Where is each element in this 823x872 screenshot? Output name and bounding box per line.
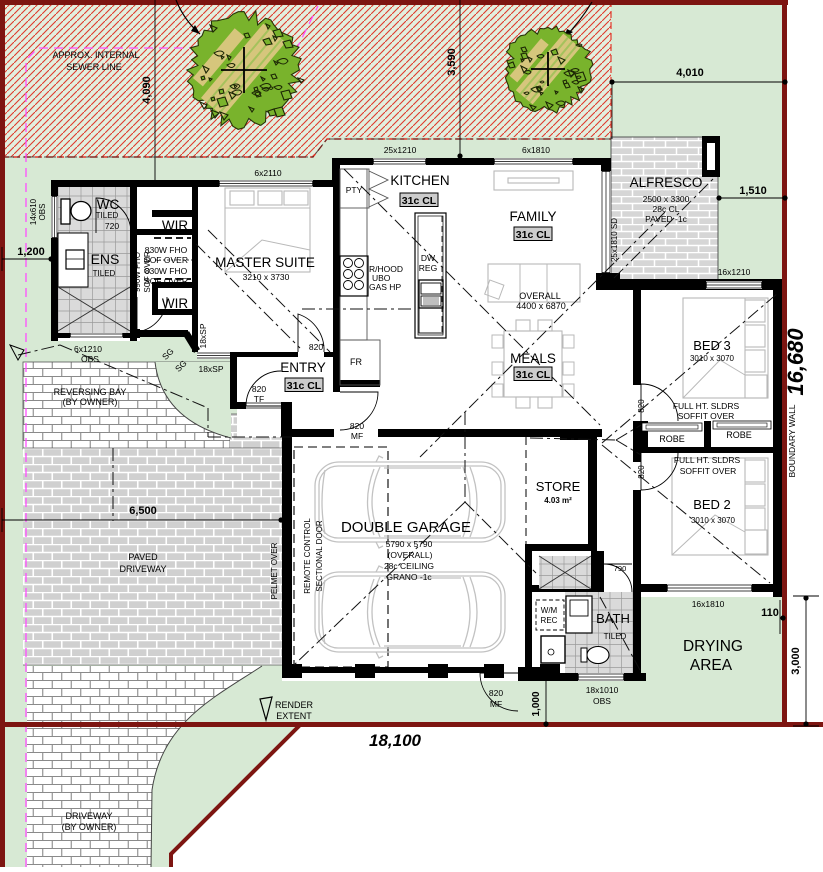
- svg-text:DOUBLE GARAGE: DOUBLE GARAGE: [341, 519, 471, 536]
- svg-text:(BY OWNER): (BY OWNER): [62, 822, 117, 832]
- svg-text:820: 820: [309, 342, 323, 352]
- svg-text:830W FHO: 830W FHO: [145, 266, 188, 276]
- svg-text:SECTIONAL DOOR: SECTIONAL DOOR: [315, 520, 324, 591]
- svg-text:APPROX. INTERNAL: APPROX. INTERNAL: [52, 50, 139, 60]
- svg-text:SOF OVER: SOF OVER: [144, 276, 188, 286]
- svg-text:FR: FR: [350, 357, 362, 367]
- svg-text:16x1810: 16x1810: [692, 599, 725, 609]
- svg-text:PAVED -1c: PAVED -1c: [645, 214, 687, 224]
- svg-text:KITCHEN: KITCHEN: [390, 173, 449, 188]
- svg-text:4,090: 4,090: [141, 76, 153, 104]
- svg-text:REVERSING BAY: REVERSING BAY: [54, 387, 127, 397]
- svg-text:3,000: 3,000: [790, 647, 802, 675]
- svg-text:1,510: 1,510: [739, 185, 767, 197]
- svg-text:4400 x 6870: 4400 x 6870: [516, 301, 566, 311]
- svg-text:3010 x 3070: 3010 x 3070: [691, 516, 736, 525]
- svg-text:OBS: OBS: [593, 696, 611, 706]
- svg-text:SEWER LINE: SEWER LINE: [66, 62, 122, 72]
- svg-text:3010 x 3070: 3010 x 3070: [690, 354, 735, 363]
- svg-text:BOUNDARY WALL: BOUNDARY WALL: [787, 404, 797, 477]
- svg-text:OBS: OBS: [38, 204, 47, 221]
- svg-text:PAVED: PAVED: [128, 552, 158, 562]
- svg-text:SOFFIT OVER: SOFFIT OVER: [680, 466, 737, 476]
- svg-text:18,100: 18,100: [369, 731, 422, 750]
- svg-text:SOFFIT OVER: SOFFIT OVER: [678, 411, 735, 421]
- svg-text:WIR: WIR: [162, 296, 188, 311]
- svg-text:ROBE: ROBE: [659, 434, 685, 444]
- svg-text:31c CL: 31c CL: [402, 195, 437, 207]
- svg-text:ALFRESCO: ALFRESCO: [630, 175, 703, 190]
- svg-text:ENS: ENS: [91, 251, 120, 267]
- svg-text:18xSP: 18xSP: [198, 323, 208, 348]
- svg-text:28c CL: 28c CL: [653, 204, 680, 214]
- svg-text:110: 110: [761, 607, 779, 619]
- svg-text:PELMET OVER: PELMET OVER: [270, 542, 279, 599]
- svg-text:31c CL: 31c CL: [287, 380, 322, 392]
- svg-text:31c CL: 31c CL: [516, 229, 551, 241]
- svg-text:ROBE: ROBE: [726, 430, 752, 440]
- svg-text:990W FHO: 990W FHO: [133, 252, 142, 292]
- svg-text:AREA: AREA: [690, 657, 733, 674]
- svg-text:REG: REG: [419, 263, 437, 273]
- svg-text:TILED: TILED: [96, 211, 119, 220]
- svg-text:4.03 m²: 4.03 m²: [544, 496, 572, 505]
- svg-text:TILED: TILED: [604, 632, 627, 641]
- svg-text:18xSP: 18xSP: [198, 364, 223, 374]
- svg-text:BATH: BATH: [596, 611, 630, 626]
- svg-text:OVERALL: OVERALL: [519, 291, 561, 301]
- svg-text:1,000: 1,000: [531, 691, 542, 716]
- svg-text:720: 720: [105, 221, 119, 231]
- svg-text:MF: MF: [490, 699, 502, 709]
- svg-text:RENDER: RENDER: [275, 700, 314, 710]
- svg-text:820: 820: [489, 688, 503, 698]
- svg-text:(BY OWNER): (BY OWNER): [63, 397, 118, 407]
- svg-text:REC: REC: [541, 616, 558, 625]
- svg-text:MEALS: MEALS: [510, 351, 556, 366]
- svg-text:DRIVEWAY: DRIVEWAY: [65, 811, 112, 821]
- svg-text:1,200: 1,200: [17, 246, 45, 258]
- svg-text:BED 3: BED 3: [693, 338, 731, 353]
- svg-text:14x610: 14x610: [29, 198, 38, 225]
- svg-text:EXTENT: EXTENT: [276, 711, 312, 721]
- svg-text:28c CEILING: 28c CEILING: [384, 561, 434, 571]
- svg-text:820: 820: [637, 399, 646, 413]
- svg-text:TF: TF: [254, 394, 264, 404]
- svg-text:W/M: W/M: [541, 606, 558, 615]
- svg-text:6,500: 6,500: [129, 505, 157, 517]
- svg-text:16x1210: 16x1210: [718, 267, 751, 277]
- svg-text:4,010: 4,010: [676, 67, 704, 79]
- svg-text:GAS HP: GAS HP: [369, 282, 401, 292]
- svg-text:STORE: STORE: [536, 479, 581, 494]
- svg-text:DRIVEWAY: DRIVEWAY: [119, 564, 166, 574]
- svg-text:MF: MF: [351, 431, 363, 441]
- svg-text:WIR: WIR: [162, 218, 188, 233]
- svg-text:18x1010: 18x1010: [586, 685, 619, 695]
- svg-text:2500 x 3300: 2500 x 3300: [643, 194, 690, 204]
- svg-text:16,680: 16,680: [783, 328, 808, 396]
- svg-text:820: 820: [252, 384, 266, 394]
- svg-text:PTY: PTY: [346, 185, 363, 195]
- svg-text:820: 820: [637, 465, 646, 479]
- svg-text:25x1810 SD: 25x1810 SD: [610, 218, 619, 262]
- svg-text:6x1810: 6x1810: [522, 145, 550, 155]
- svg-text:GRANO -1c: GRANO -1c: [386, 572, 432, 582]
- svg-text:830W FHO: 830W FHO: [145, 245, 188, 255]
- svg-text:790: 790: [614, 564, 627, 573]
- svg-text:MASTER SUITE: MASTER SUITE: [215, 255, 315, 270]
- svg-text:3210 x 3730: 3210 x 3730: [243, 272, 290, 282]
- svg-text:820: 820: [350, 421, 364, 431]
- svg-text:SOF OVER: SOF OVER: [144, 255, 188, 265]
- svg-text:TILED: TILED: [93, 269, 116, 278]
- svg-text:6x2110: 6x2110: [254, 168, 282, 178]
- svg-text:BED 2: BED 2: [693, 497, 731, 512]
- svg-text:FAMILY: FAMILY: [509, 209, 556, 224]
- svg-text:OBS: OBS: [81, 354, 99, 364]
- svg-text:5790 x 5790: 5790 x 5790: [386, 539, 433, 549]
- svg-text:FULL HT. SLDRS: FULL HT. SLDRS: [674, 455, 741, 465]
- svg-text:DW: DW: [421, 253, 435, 263]
- svg-text:WC: WC: [97, 197, 120, 212]
- svg-text:ENTRY: ENTRY: [280, 360, 326, 375]
- svg-text:6x1210: 6x1210: [74, 344, 102, 354]
- svg-text:FULL HT. SLDRS: FULL HT. SLDRS: [673, 401, 740, 411]
- svg-text:REMOTE CONTROL: REMOTE CONTROL: [303, 518, 312, 594]
- svg-text:(OVERALL): (OVERALL): [388, 550, 433, 560]
- svg-text:DRYING: DRYING: [683, 638, 743, 655]
- svg-text:3,590: 3,590: [446, 48, 458, 76]
- svg-text:31c CL: 31c CL: [516, 369, 551, 381]
- svg-text:25x1210: 25x1210: [384, 145, 417, 155]
